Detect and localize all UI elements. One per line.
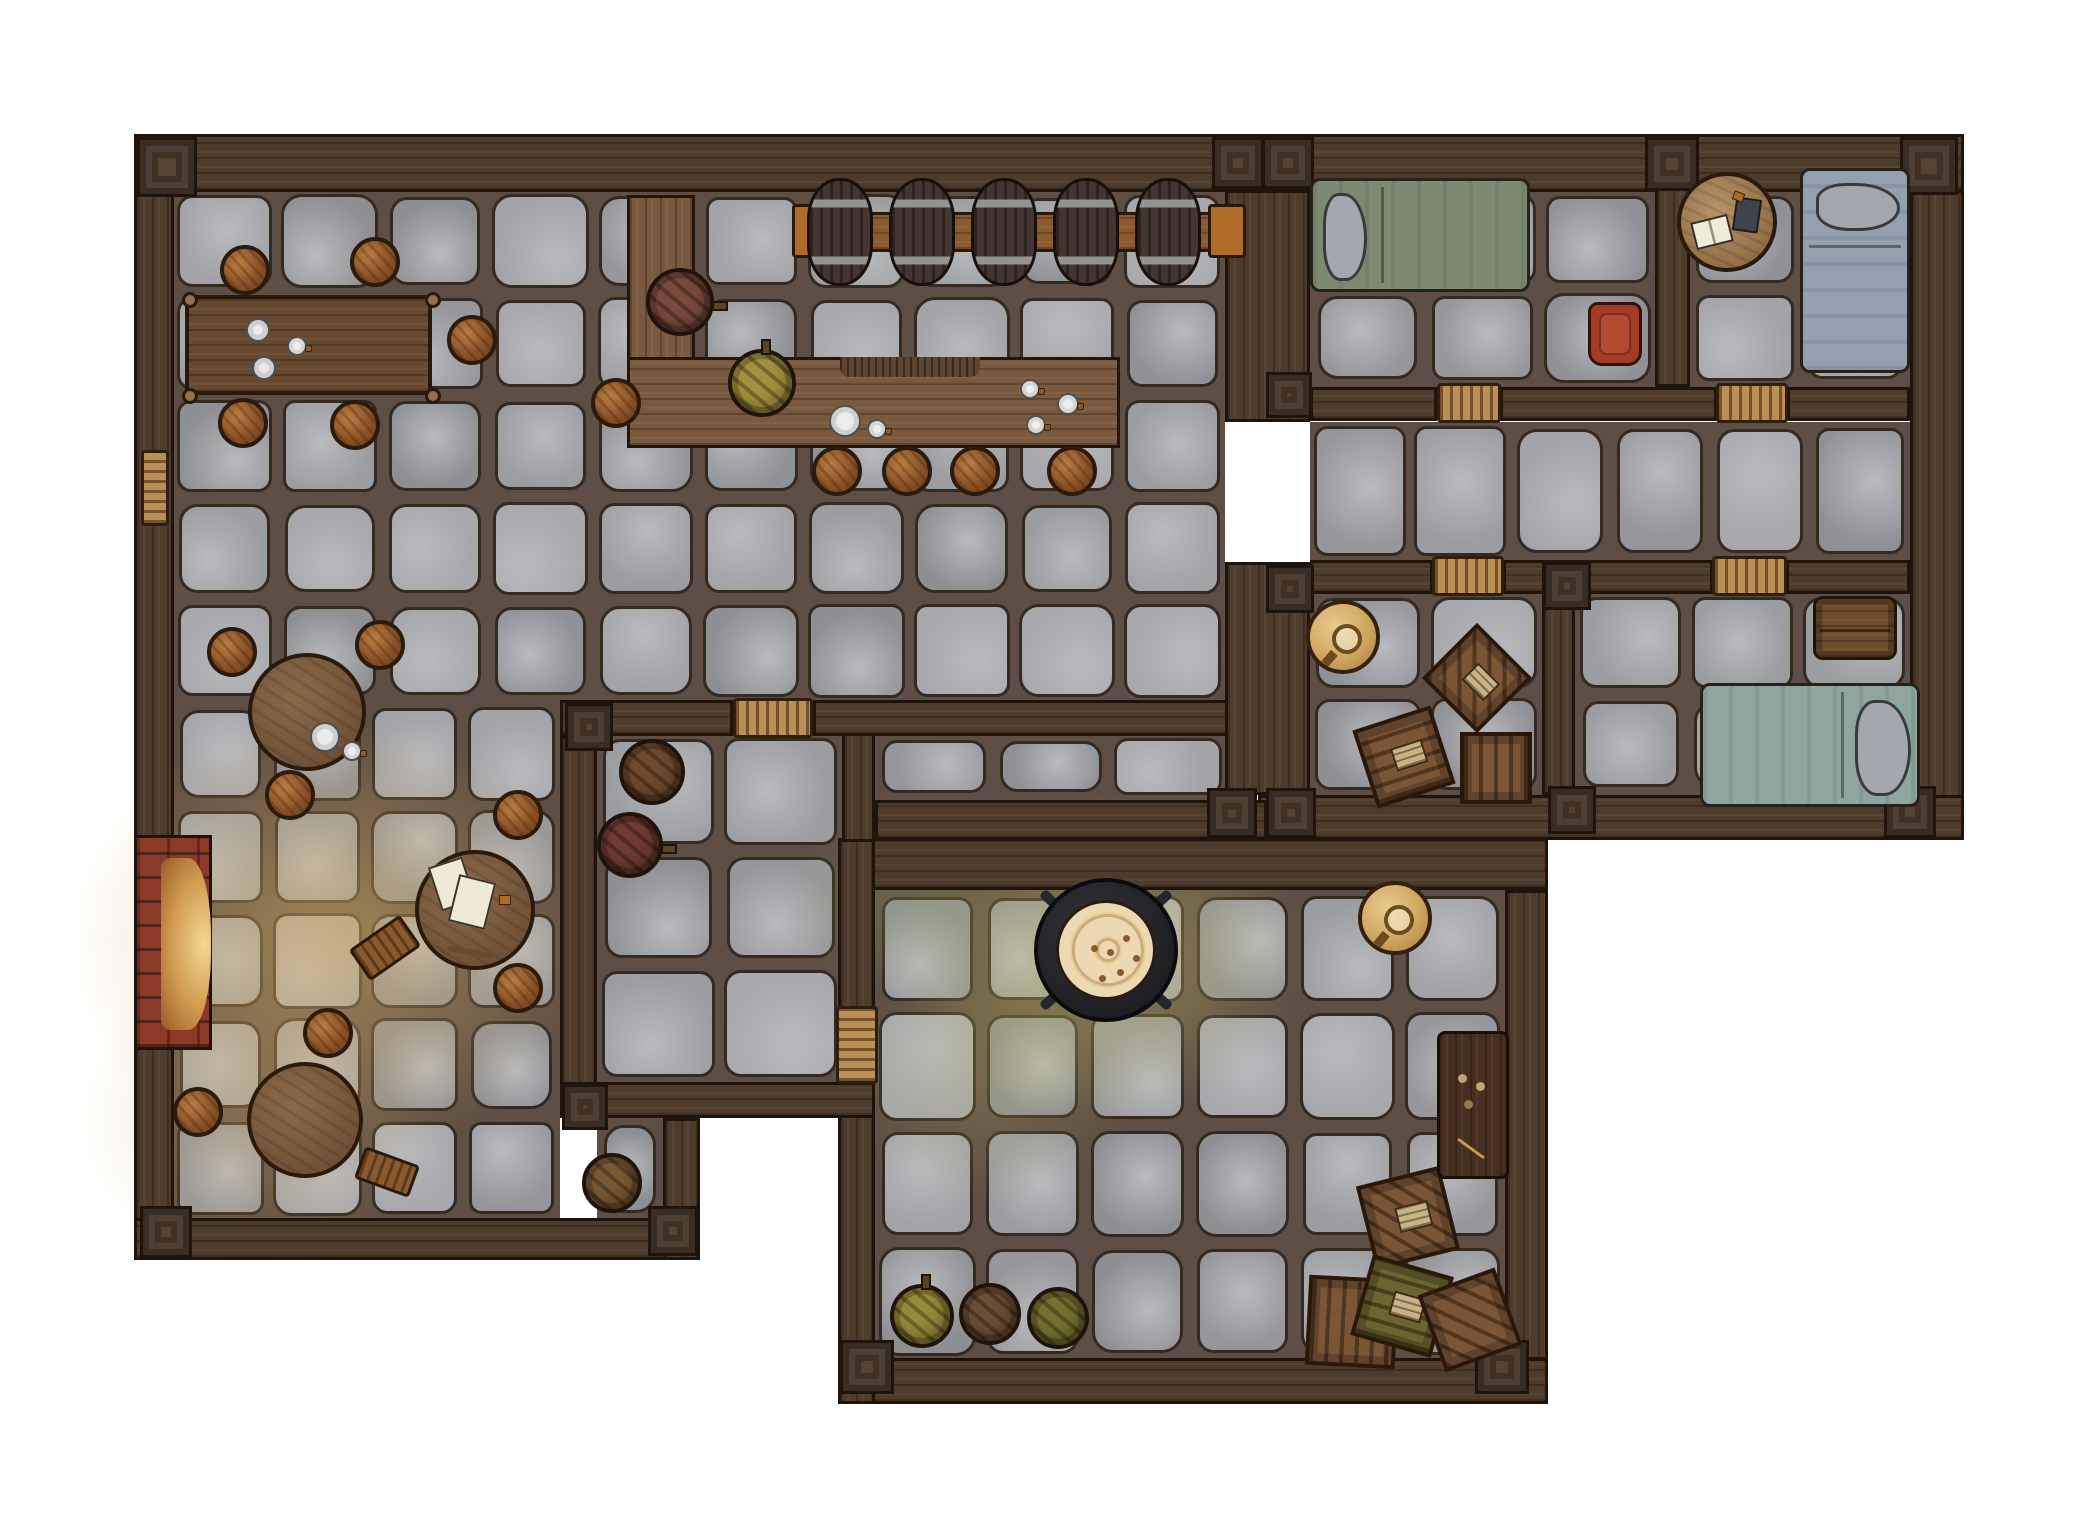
bed [1800, 168, 1910, 373]
stone-tile [389, 401, 481, 490]
rack-barrel [807, 178, 873, 286]
stone-tile [273, 913, 362, 1008]
wall [134, 190, 174, 1260]
stone-tile [1432, 296, 1533, 380]
mug-handle [305, 345, 312, 352]
fireplace [134, 835, 212, 1050]
stone-tile [724, 738, 837, 845]
stone-tile [1546, 196, 1650, 283]
crate [1460, 732, 1532, 804]
wall [560, 736, 597, 1118]
floor-corridor [875, 733, 1227, 800]
crate-label [1462, 663, 1501, 702]
stone-tile [1300, 1013, 1394, 1120]
stool [591, 378, 641, 428]
stone-tile [1696, 295, 1793, 381]
mug [287, 336, 307, 356]
stone-tile [285, 505, 375, 592]
stool [882, 446, 932, 496]
mug [867, 419, 887, 439]
corner-post [1212, 137, 1264, 189]
wall [1505, 890, 1548, 1360]
stone-tile [1197, 1249, 1289, 1353]
stone-tile [1196, 1131, 1289, 1237]
corner-post [137, 137, 197, 197]
stone-tile [882, 1132, 972, 1235]
wall [134, 1218, 700, 1260]
stone-tile [495, 607, 586, 695]
mug [342, 741, 362, 761]
corner-post [565, 703, 613, 751]
corner-post [1262, 137, 1314, 189]
door-icon [1432, 556, 1504, 596]
table-knob [425, 292, 441, 308]
door-icon [836, 1006, 878, 1084]
corner-post [1266, 788, 1316, 838]
battle-map [0, 0, 2100, 1540]
stone-tile [914, 604, 1010, 697]
stone-tile [275, 811, 360, 903]
mug-handle [885, 428, 892, 435]
bed-pillow [1323, 193, 1367, 281]
door-icon [1712, 556, 1787, 596]
barrel-spigot [712, 301, 728, 311]
armchair [1588, 302, 1642, 366]
stone-tile [1124, 604, 1221, 698]
wall [813, 700, 1262, 736]
stone-tile [1617, 429, 1703, 553]
gold-plate-table [1358, 881, 1432, 955]
barrel-top [646, 268, 714, 336]
mug-glyph [1384, 905, 1414, 935]
bed-pillow [1855, 700, 1911, 796]
stool [303, 1008, 353, 1058]
mug-handle [1077, 403, 1084, 410]
stool [218, 398, 268, 448]
stool [355, 620, 405, 670]
wall [1500, 387, 1717, 421]
cauldron [1020, 864, 1192, 1036]
barrel-top [597, 812, 663, 878]
wall [1787, 387, 1910, 421]
corner-post [1266, 565, 1314, 613]
table-knob [182, 292, 198, 308]
corner-post [1266, 372, 1312, 418]
mug-handle [360, 750, 367, 757]
corner-post [1207, 788, 1257, 838]
stone-tile [703, 605, 798, 698]
soup-bits [1107, 949, 1114, 956]
stone-tile [468, 707, 555, 801]
rack-barrel [889, 178, 955, 286]
stone-tile [1125, 400, 1220, 492]
bed-fold-line [1841, 692, 1844, 798]
plate [310, 722, 340, 752]
stone-tile [1091, 1131, 1184, 1237]
stone-tile [986, 1131, 1078, 1236]
corner-post [140, 1206, 192, 1258]
stool [950, 446, 1000, 496]
stone-tile [1816, 428, 1903, 553]
rack-barrel [971, 178, 1037, 286]
mug [1026, 415, 1046, 435]
corner-post [562, 1084, 608, 1130]
stone-tile [1000, 741, 1102, 793]
stone-tile [1125, 502, 1220, 594]
barrel-spigot [761, 339, 771, 355]
stone-tile [879, 1012, 975, 1121]
stone-tile [915, 504, 1008, 594]
stool [493, 963, 543, 1013]
stone-tile [1197, 897, 1288, 1001]
stone-tile [371, 1018, 458, 1112]
wall [1310, 560, 1433, 594]
stone-tile [809, 502, 904, 594]
stone-tile [469, 1122, 554, 1214]
wood-chip [499, 895, 511, 905]
plate [246, 318, 270, 342]
stone-tile [1092, 1250, 1183, 1353]
writing-desk [1437, 1031, 1509, 1179]
stone-tile [1019, 604, 1115, 697]
gold-plate-table [1306, 600, 1380, 674]
stool [812, 446, 862, 496]
rack-barrel [1135, 178, 1201, 286]
plate [252, 356, 276, 380]
chest [1813, 596, 1897, 660]
wall-bench [141, 450, 169, 526]
stool [265, 770, 315, 820]
barrel-top [728, 349, 796, 417]
stone-tile [602, 971, 715, 1078]
bed [1700, 683, 1920, 807]
stool [220, 245, 270, 295]
mug-handle [1044, 424, 1051, 431]
wall [1786, 560, 1910, 594]
door-icon [1716, 383, 1788, 423]
cauldron-soup [1056, 900, 1156, 1000]
stone-tile [1414, 426, 1505, 555]
corner-post [1543, 562, 1591, 610]
stool [493, 790, 543, 840]
bed-pillow [1816, 183, 1900, 231]
stone-tile [706, 197, 797, 285]
mug [1020, 379, 1040, 399]
door-icon [1437, 383, 1501, 423]
stone-tile [492, 194, 589, 288]
chest-lid-line [1820, 629, 1890, 632]
barrel-top [1027, 1287, 1089, 1349]
stone-tile [1583, 701, 1680, 787]
stool [447, 315, 497, 365]
mug-glyph-handle [1321, 650, 1338, 667]
stone-tile [495, 402, 587, 491]
fireplace-hearth [161, 858, 211, 1030]
stone-tile [882, 740, 986, 794]
stone-tile [496, 300, 586, 387]
corner-post [1548, 786, 1596, 834]
bar-hatch [840, 357, 980, 377]
barrel-rack-bracket [1208, 204, 1246, 258]
wall [1503, 560, 1713, 594]
wall [838, 838, 1548, 890]
stone-tile [372, 708, 458, 800]
barrel-top [890, 1284, 954, 1348]
stone-tile [179, 504, 271, 593]
table-knob [182, 388, 198, 404]
desk-items [1458, 1074, 1467, 1083]
stone-tile [724, 970, 837, 1077]
stone-tile [1114, 738, 1222, 796]
stone-tile [727, 857, 835, 959]
corner-post [648, 1206, 698, 1256]
closed-book [1732, 196, 1762, 233]
stone-tile [808, 604, 904, 697]
mug [1057, 393, 1079, 415]
round-table [247, 1062, 363, 1178]
stone-tile [1314, 426, 1406, 556]
wall [838, 838, 875, 1014]
crate-label [1394, 1200, 1434, 1233]
stool [1047, 446, 1097, 496]
barrel-spigot [921, 1274, 931, 1290]
stone-tile [600, 606, 692, 695]
barrel-top [582, 1153, 642, 1213]
mug-handle [1038, 388, 1045, 395]
rack-barrel [1053, 178, 1119, 286]
stone-tile [389, 504, 481, 593]
corner-post [840, 1340, 894, 1394]
desk-pencil [1456, 1136, 1486, 1160]
plate [829, 405, 861, 437]
stone-tile [705, 504, 798, 594]
barrel-spigot [661, 844, 677, 854]
stone-tile [390, 197, 480, 285]
stool [173, 1087, 223, 1137]
stone-tile [1127, 300, 1218, 388]
corner-post [1645, 137, 1699, 191]
floor-upper-hallway [1310, 422, 1910, 560]
stone-tile [1580, 597, 1681, 688]
barrel-top [619, 739, 685, 805]
stone-tile [599, 503, 693, 595]
mug-glyph [1332, 624, 1362, 654]
bed-fold-line [1381, 187, 1384, 283]
stone-tile [1717, 429, 1804, 554]
wall [1310, 387, 1437, 421]
mug-glyph-handle [1373, 931, 1390, 948]
crate-label [1390, 738, 1429, 772]
armchair-seat [1599, 313, 1631, 355]
stone-tile [1692, 597, 1793, 688]
stool [350, 237, 400, 287]
wall [838, 1358, 1548, 1404]
stone-tile [471, 1021, 553, 1109]
stone-tile [1318, 296, 1418, 379]
barrel-top [959, 1283, 1021, 1345]
stone-tile [882, 897, 973, 1001]
stone-tile [1517, 429, 1602, 552]
bed [1310, 178, 1530, 292]
stone-tile [493, 502, 588, 594]
stool [330, 400, 380, 450]
door-icon [733, 698, 813, 738]
table-knob [425, 388, 441, 404]
stone-tile [1197, 1015, 1287, 1118]
stone-tile [1022, 505, 1112, 592]
bed-fold-line [1809, 245, 1901, 248]
stool [207, 627, 257, 677]
